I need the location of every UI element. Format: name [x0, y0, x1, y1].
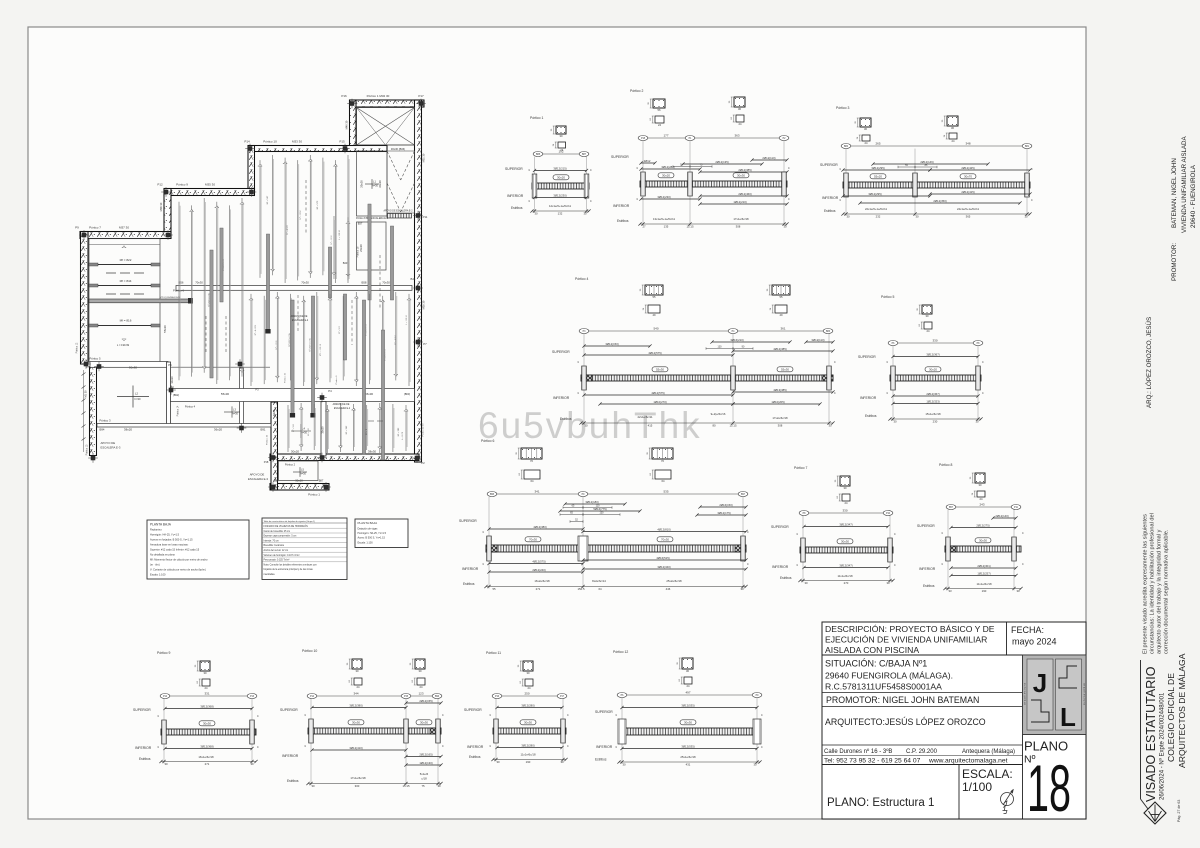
svg-text:30x20: 30x20 [929, 368, 937, 372]
svg-text:2Ø16(150): 2Ø16(150) [719, 503, 732, 507]
svg-text:SUPERIOR: SUPERIOR [133, 708, 151, 712]
svg-text:APOYO DE ESCALERA E-2: APOYO DE ESCALERA E-2 [384, 210, 414, 213]
svg-text:FECHA:: FECHA: [1011, 625, 1044, 635]
svg-text:497: 497 [685, 690, 690, 694]
svg-text:30: 30 [740, 587, 744, 591]
svg-text:232: 232 [876, 215, 881, 219]
svg-text:Pórtico 2: Pórtico 2 [630, 89, 643, 93]
svg-text:Mf: Momento flector de cálculo: Mf: Momento flector de cálculo por metro… [150, 558, 208, 562]
svg-text:macizadas.: macizadas. [264, 574, 276, 576]
svg-text:2Ø12: 2Ø12 [644, 159, 651, 163]
svg-text:70: 70 [661, 459, 664, 463]
svg-text:Mf = 146: Mf = 146 [308, 427, 310, 436]
svg-text:13x1e/6+1e/6c/11: 13x1e/6+1e/6c/11 [653, 217, 676, 221]
svg-text:4Ø12(380): 4Ø12(380) [533, 525, 546, 529]
svg-text:16x2e/6c/18: 16x2e/6c/18 [534, 579, 550, 583]
svg-text:4Ø13(385): 4Ø13(385) [773, 388, 786, 392]
svg-text:3Ø12(180): 3Ø12(180) [585, 500, 598, 504]
svg-text:80: 80 [712, 424, 716, 428]
svg-text:30: 30 [204, 671, 207, 675]
svg-text:150.5: 150.5 [578, 587, 585, 591]
svg-text:35x30: 35x30 [360, 180, 364, 188]
svg-text:Aceros en forjados: B 500 S,: Aceros en forjados: B 500 S, Ys=1.15 [150, 538, 193, 542]
svg-text:INFERIOR: INFERIOR [462, 567, 479, 571]
svg-text:M1 30: M1 30 [84, 390, 88, 398]
svg-text:ARRANQUE DE: ARRANQUE DE [333, 403, 350, 406]
svg-text:308: 308 [736, 225, 741, 229]
svg-text:SITUACIÓN: C/BAJA Nº1: SITUACIÓN: C/BAJA Nº1 [825, 659, 927, 669]
svg-text:V: Cortante de cálculo por met: V: Cortante de cálculo por metro de anch… [150, 568, 206, 572]
svg-text:24: 24 [927, 329, 930, 333]
svg-text:SUPERIOR: SUPERIOR [820, 163, 838, 167]
svg-text:Pórtico 7: Pórtico 7 [89, 226, 101, 230]
svg-text:55x20: 55x20 [874, 175, 882, 179]
svg-text:Pórtico 9: Pórtico 9 [157, 651, 170, 655]
svg-text:38x30: 38x30 [368, 450, 377, 454]
svg-text:SUPERIOR: SUPERIOR [771, 525, 789, 529]
svg-text:56: 56 [658, 108, 661, 112]
svg-text:Nº12Ø15c/15A: Nº12Ø15c/15A [309, 338, 312, 352]
svg-text:70x30: 70x30 [661, 538, 669, 542]
svg-text:B57: B57 [949, 507, 954, 509]
svg-text:2Ø12(275): 2Ø12(275) [976, 523, 989, 527]
svg-text:J: J [1033, 668, 1047, 698]
svg-text:55x30: 55x30 [781, 368, 789, 372]
svg-text:30: 30 [1024, 215, 1028, 219]
svg-text:11x1e/6c/18: 11x1e/6c/18 [976, 582, 991, 586]
svg-text:3Ø12(230): 3Ø12(230) [553, 193, 566, 197]
svg-text:ARQUITECTOS DE MÁLAGA: ARQUITECTOS DE MÁLAGA [1177, 653, 1187, 768]
svg-text:L = 128.18: L = 128.18 [406, 314, 408, 324]
svg-text:11x1e/6c/18: 11x1e/6c/18 [520, 753, 535, 757]
svg-text:P17: P17 [560, 696, 565, 698]
svg-text:55x30: 55x30 [163, 325, 167, 333]
svg-text:Pórtico 3: Pórtico 3 [836, 106, 849, 110]
svg-text:Mf = 816: Mf = 816 [120, 319, 132, 323]
svg-text:Nº = 584: Nº = 584 [292, 423, 295, 432]
svg-text:3Ø12(535): 3Ø12(535) [681, 744, 694, 748]
svg-text:17x2e/6c/18: 17x2e/6c/18 [772, 416, 788, 420]
svg-text:INFERIOR: INFERIOR [282, 754, 299, 758]
svg-text:29640 - FUENGIROLA: 29640 - FUENGIROLA [1190, 164, 1197, 228]
svg-text:Nota: Consulte los detalles re: Nota: Consulte los detalles referentes a… [264, 563, 318, 566]
svg-text:M33 30: M33 30 [292, 140, 302, 144]
svg-text:Pórtico 12: Pórtico 12 [76, 342, 79, 353]
svg-text:230: 230 [933, 420, 938, 424]
svg-text:Intereje: 70 cm: Intereje: 70 cm [264, 539, 279, 542]
svg-text:Acero: B 500 S, Ys=1.15: Acero: B 500 S, Ys=1.15 [358, 537, 386, 540]
svg-text:circunstancias: La identidad y: circunstancias: La identidad y habilitac… [1150, 513, 1156, 654]
svg-text:3Ø12(230): 3Ø12(230) [657, 195, 670, 199]
svg-text:PLANTA BAJA: PLANTA BAJA [150, 523, 172, 527]
svg-text:55: 55 [492, 587, 496, 591]
svg-text:Superior: #12 cada 15 Inferi: Superior: #12 cada 15 Inferior: #12 cada… [150, 548, 200, 552]
svg-text:Hormigón: HA-25, Yc=1.5: Hormigón: HA-25, Yc=1.5 [358, 532, 387, 535]
svg-text:18: 18 [1027, 751, 1071, 825]
svg-text:1Ø12(257): 1Ø12(257) [977, 571, 990, 575]
svg-text:3Ø12(535): 3Ø12(535) [681, 703, 694, 707]
svg-text:L2: L2 [135, 392, 138, 396]
svg-text:30: 30 [804, 581, 808, 585]
svg-text:30: 30 [250, 762, 254, 766]
svg-text:SUPERIOR: SUPERIOR [459, 519, 477, 523]
svg-text:30: 30 [979, 483, 982, 487]
svg-text:24: 24 [687, 684, 690, 688]
svg-text:75: 75 [421, 784, 425, 788]
svg-text:2Ø12(240): 2Ø12(240) [532, 568, 545, 572]
svg-text:Pórtico 1: Pórtico 1 [308, 493, 320, 497]
svg-text:BATEMAN, NIGEL JOHN: BATEMAN, NIGEL JOHN [1171, 158, 1178, 228]
svg-text:30: 30 [846, 215, 850, 219]
svg-text:El presente visado acredita ex: El presente visado acredita expresamente… [1143, 514, 1149, 654]
svg-text:30x30: 30x30 [684, 721, 692, 725]
svg-text:24x1e/6+1e/6c/11: 24x1e/6+1e/6c/11 [957, 207, 980, 211]
svg-text:8x2e/6c/14: 8x2e/6c/14 [592, 579, 606, 583]
svg-text:2Ø12(350): 2Ø12(350) [933, 199, 946, 203]
svg-text:4Ø12(575): 4Ø12(575) [651, 391, 664, 395]
svg-text:30: 30 [311, 784, 315, 788]
svg-text:30: 30 [686, 669, 689, 673]
svg-text:M40 30: M40 30 [345, 120, 349, 129]
svg-text:Nº = A 1034: Nº = A 1034 [254, 324, 257, 335]
svg-text:535: 535 [663, 489, 668, 493]
svg-text:330: 330 [932, 338, 937, 342]
svg-text:190: 190 [982, 589, 987, 593]
svg-text:B83: B83 [826, 331, 831, 333]
svg-text:L: L [1060, 702, 1076, 732]
svg-text:B41: B41 [411, 277, 416, 281]
svg-text:64: 64 [531, 479, 534, 483]
svg-text:20x30: 20x30 [359, 244, 363, 252]
svg-text:30x30 (B36): 30x30 (B36) [391, 147, 405, 151]
svg-text:a r q u i t e c t u r a: a r q u i t e c t u r a [1083, 683, 1087, 705]
svg-text:P6: P6 [168, 363, 172, 367]
svg-text:ESCALERA E-2: ESCALERA E-2 [334, 407, 351, 410]
svg-text:ARQUITECTO:JESÚS LÓPEZ OROZCO: ARQUITECTO:JESÚS LÓPEZ OROZCO [825, 717, 986, 727]
svg-text:30x70: 30x70 [964, 175, 972, 179]
svg-text:4Ø12(385): 4Ø12(385) [773, 347, 786, 351]
svg-text:Estribos: Estribos [923, 584, 935, 588]
svg-text:271: 271 [205, 762, 210, 766]
svg-text:Calle Durones nº 16 - 3ºB: Calle Durones nº 16 - 3ºB [824, 748, 892, 755]
svg-text:P12: P12 [157, 183, 163, 187]
svg-text:300: 300 [355, 784, 360, 788]
svg-text:344: 344 [353, 691, 358, 695]
svg-text:APOYO DE: APOYO DE [250, 473, 265, 477]
svg-text:M36 30: M36 30 [159, 202, 163, 211]
svg-text:55x30: 55x30 [221, 392, 230, 396]
svg-text:Nº = A 923: Nº = A 923 [286, 224, 289, 234]
svg-text:(B63): (B63) [404, 392, 410, 396]
svg-text:30: 30 [534, 212, 538, 216]
svg-text:APOYO DE: APOYO DE [101, 441, 116, 445]
svg-text:30: 30 [738, 107, 741, 111]
svg-text:3Ø16(210): 3Ø16(210) [730, 338, 743, 342]
svg-text:Pórtico 28: Pórtico 28 [357, 246, 360, 257]
svg-text:INFERIOR: INFERIOR [860, 396, 877, 400]
svg-text:ARRANQUE DE: ARRANQUE DE [291, 315, 308, 318]
svg-text:15.15: 15.15 [730, 424, 737, 428]
svg-text:P10: P10 [886, 513, 891, 515]
svg-text:446: 446 [666, 587, 671, 591]
svg-text:3Ø12(280): 3Ø12(280) [521, 703, 534, 707]
svg-text:30: 30 [622, 763, 626, 767]
svg-text:B58: B58 [362, 281, 367, 285]
svg-text:Nº = 503: Nº = 503 [338, 325, 341, 334]
svg-text:11x1e/6c/18: 11x1e/6c/18 [837, 574, 852, 578]
svg-text:1Ø10(270): 1Ø10(270) [653, 400, 666, 404]
svg-text:24: 24 [658, 123, 661, 127]
svg-text:3Ø12(280): 3Ø12(280) [661, 165, 674, 169]
svg-text:Nº L = 128.18: Nº L = 128.18 [319, 343, 322, 356]
svg-text:30: 30 [1016, 589, 1020, 593]
svg-text:SUPERIOR: SUPERIOR [858, 355, 876, 359]
svg-text:341: 341 [534, 489, 539, 493]
svg-text:70: 70 [530, 459, 533, 463]
svg-text:No detallada en plano: No detallada en plano [150, 553, 175, 557]
svg-text:3Ø12(175): 3Ø12(175) [717, 511, 730, 515]
svg-text:Pórtico 13: Pórtico 13 [86, 444, 89, 455]
svg-text:Pórtico 9: Pórtico 9 [335, 375, 338, 384]
svg-text:130: 130 [718, 346, 723, 349]
svg-text:25x1e/6c/18: 25x1e/6c/18 [680, 755, 696, 759]
svg-text:24: 24 [739, 122, 742, 126]
svg-text:SUPERIOR: SUPERIOR [917, 524, 935, 528]
svg-text:PLANTA BAJA: PLANTA BAJA [358, 521, 378, 525]
svg-text:Hormigón: HA-25, Yc=1.5: Hormigón: HA-25, Yc=1.5 [150, 533, 180, 537]
svg-text:Datación de vigas: Datación de vigas [358, 528, 379, 531]
svg-text:15x1e/6c/18: 15x1e/6c/18 [925, 412, 941, 416]
svg-text:Pórtico 10: Pórtico 10 [263, 140, 277, 144]
svg-text:Antequera (Málaga): Antequera (Málaga) [962, 749, 1015, 755]
svg-text:INFERIOR: INFERIOR [772, 565, 789, 569]
svg-text:135: 135 [664, 225, 669, 229]
svg-text:132: 132 [558, 212, 563, 216]
svg-text:Pórtico 3: Pórtico 3 [100, 419, 111, 423]
svg-text:30x20: 30x20 [273, 409, 276, 416]
svg-text:B96: B96 [435, 696, 440, 698]
svg-text:30x30: 30x30 [170, 376, 174, 384]
svg-text:SUPERIOR: SUPERIOR [464, 708, 482, 712]
svg-text:415: 415 [648, 424, 653, 428]
svg-text:1Ø10(205): 1Ø10(205) [771, 400, 784, 404]
svg-text:P14: P14 [244, 140, 250, 144]
svg-text:Nº12Ø15c/15: Nº12Ø15c/15 [222, 258, 225, 271]
svg-text:P14: P14 [310, 696, 315, 698]
svg-text:4Ø12(575): 4Ø12(575) [532, 559, 545, 563]
svg-text:55x30: 55x30 [656, 368, 664, 372]
svg-text:h=30: h=30 [372, 184, 378, 188]
svg-text:330: 330 [842, 508, 847, 512]
svg-text:1Ø12(130): 1Ø12(130) [419, 761, 432, 765]
svg-text:2Ø12(110): 2Ø12(110) [762, 156, 775, 160]
svg-text:Pórtico 11: Pórtico 11 [486, 651, 501, 655]
svg-text:24: 24 [528, 686, 531, 690]
svg-text:B94: B94 [100, 428, 105, 432]
svg-text:2Ø12(301): 2Ø12(301) [977, 564, 990, 568]
svg-text:PROMOTOR:: PROMOTOR: [1171, 243, 1178, 281]
svg-text:3Ø12(280): 3Ø12(280) [521, 743, 534, 747]
svg-text:1/100: 1/100 [962, 780, 992, 794]
svg-text:30x30: 30x30 [352, 721, 360, 725]
svg-text:P15: P15 [339, 140, 345, 144]
svg-text:Escala: 1:100: Escala: 1:100 [150, 573, 166, 577]
svg-text:Pórtico 9: Pórtico 9 [176, 183, 188, 187]
svg-text:30x30: 30x30 [420, 721, 428, 725]
svg-text:c/18: c/18 [421, 777, 427, 781]
svg-text:INFERIOR: INFERIOR [135, 746, 152, 750]
svg-text:B88: B88 [536, 154, 541, 156]
svg-text:www.arquitectomalaga.net: www.arquitectomalaga.net [928, 758, 1008, 765]
svg-text:2Ø12(460): 2Ø12(460) [738, 192, 751, 196]
svg-text:2Ø12(155): 2Ø12(155) [419, 699, 432, 703]
svg-text:9+2(e/6c/16: 9+2(e/6c/16 [711, 412, 726, 416]
svg-text:INFERIOR: INFERIOR [553, 396, 570, 400]
svg-text:38x20: 38x20 [124, 428, 133, 432]
svg-text:3Ø12(150): 3Ø12(150) [605, 342, 618, 346]
svg-text:64: 64 [598, 587, 602, 591]
svg-text:3Ø12(380): 3Ø12(380) [349, 703, 362, 707]
svg-text:24: 24 [952, 139, 955, 143]
svg-text:Escala: 1:100: Escala: 1:100 [358, 541, 374, 544]
svg-text:Estribos: Estribos [463, 582, 475, 586]
svg-text:30x30: 30x30 [841, 540, 849, 544]
svg-text:Estribos: Estribos [824, 209, 836, 213]
svg-text:Mf = 342: Mf = 342 [346, 425, 348, 434]
svg-text:B95: B95 [490, 494, 495, 496]
svg-text:Replanteo: Replanteo [150, 528, 162, 532]
svg-text:Pórtico 6: Pórtico 6 [481, 439, 494, 443]
svg-text:B97: B97 [741, 494, 746, 496]
svg-text:3Ø12(368): 3Ø12(368) [200, 704, 213, 708]
svg-text:30x20: 30x20 [557, 176, 565, 180]
svg-text:Nº = 1294: Nº = 1294 [299, 210, 302, 220]
svg-text:SUPERIOR: SUPERIOR [595, 710, 613, 714]
svg-text:Nº = A 804: Nº = A 804 [394, 334, 397, 344]
svg-text:22x1e/6+1e/6c/11: 22x1e/6+1e/6c/11 [865, 207, 888, 211]
svg-text:30x30: 30x30 [129, 366, 138, 370]
svg-text:331: 331 [204, 691, 209, 695]
svg-text:4Ø12(810): 4Ø12(810) [657, 527, 670, 531]
svg-text:Pórtico 1: Pórtico 1 [530, 116, 543, 120]
svg-text:16x1e/6c/18: 16x1e/6c/18 [198, 755, 214, 759]
svg-text:177: 177 [663, 133, 668, 137]
svg-text:24: 24 [845, 501, 848, 505]
svg-text:30x30: 30x30 [203, 722, 211, 726]
svg-text:2Ø12(425): 2Ø12(425) [961, 166, 974, 170]
svg-text:P18: P18 [641, 138, 646, 140]
svg-text:P16: P16 [341, 94, 347, 98]
svg-text:30: 30 [951, 126, 954, 130]
svg-text:2Ø12(165): 2Ø12(165) [419, 752, 432, 756]
svg-text:INFERIOR: INFERIOR [822, 196, 839, 200]
svg-text:25x2e/6c/18: 25x2e/6c/18 [666, 579, 682, 583]
svg-text:29640 FUENGIROLA (MÁLAGA).: 29640 FUENGIROLA (MÁLAGA). [825, 671, 953, 681]
svg-text:30: 30 [560, 760, 564, 764]
svg-text:2Ø12(146): 2Ø12(146) [920, 160, 933, 164]
svg-text:M31 30: M31 30 [422, 153, 426, 162]
svg-text:SUPERIOR: SUPERIOR [505, 167, 523, 171]
svg-text:Estribos: Estribos [560, 417, 572, 421]
svg-text:B91: B91 [261, 428, 266, 432]
svg-text:Mf < 8: Mf < 8 [365, 428, 368, 435]
svg-text:P16: P16 [495, 696, 500, 698]
svg-text:ESCALERA E-3: ESCALERA E-3 [248, 477, 268, 481]
svg-text:h=30: h=30 [300, 472, 306, 476]
svg-text:270: 270 [844, 581, 849, 585]
svg-text:corrección documental según no: corrección documental según normativa ap… [1164, 529, 1170, 654]
svg-text:70x30: 70x30 [301, 281, 309, 285]
svg-text:30: 30 [886, 581, 890, 585]
svg-text:Estribos: Estribos [511, 206, 523, 210]
svg-text:Nº12Ø15c/15A: Nº12Ø15c/15A [288, 333, 291, 347]
svg-text:Estribos: Estribos [780, 576, 792, 580]
svg-text:4Ø12(575): 4Ø12(575) [648, 351, 661, 355]
svg-text:AISLADA CON PISCINA: AISLADA CON PISCINA [825, 645, 919, 655]
svg-text:h=30: h=30 [232, 412, 238, 416]
svg-text:4Ø16(515): 4Ø16(515) [656, 556, 669, 560]
svg-text:FORJADO DE VIGUETAS DE HOR: FORJADO DE VIGUETAS DE HORMIGÓN [264, 525, 309, 528]
svg-text:3Ø12(410): 3Ø12(410) [349, 746, 362, 750]
svg-text:3Ø12(368): 3Ø12(368) [200, 744, 213, 748]
svg-text:3Ø12(340): 3Ø12(340) [657, 565, 670, 569]
svg-text:Canto de bovedilla: 25 cm: Canto de bovedilla: 25 cm [264, 530, 291, 533]
svg-text:VIVIENDA UNIFAMILIAR AISLADA: VIVIENDA UNIFAMILIAR AISLADA [1181, 136, 1188, 233]
svg-text:Nº = 1036: Nº = 1036 [275, 340, 278, 350]
svg-text:M37 30: M37 30 [119, 226, 129, 230]
svg-text:P7: P7 [423, 342, 427, 346]
svg-text:P15: P15 [404, 696, 409, 698]
svg-text:540: 540 [653, 326, 658, 330]
svg-text:Pág. 27 de 63: Pág. 27 de 63 [1177, 800, 1181, 822]
svg-text:55x30: 55x30 [365, 392, 374, 396]
svg-text:190: 190 [526, 760, 531, 764]
svg-text:30: 30 [583, 212, 587, 216]
svg-text:24: 24 [420, 685, 423, 689]
svg-text:361: 361 [780, 326, 785, 330]
svg-text:130: 130 [600, 512, 605, 515]
svg-text:Pórtico 4: Pórtico 4 [575, 277, 588, 281]
svg-text:30x20: 30x20 [291, 450, 300, 454]
svg-text:3Ø12(367): 3Ø12(367) [926, 352, 939, 356]
svg-text:Pórtico 7: Pórtico 7 [794, 466, 807, 470]
svg-text:a r q u i t e c t u r a: a r q u i t e c t u r a [1023, 683, 1027, 705]
svg-text:Espesor capa compresión: 5 cm: Espesor capa compresión: 5 cm [264, 535, 297, 538]
svg-text:36x20: 36x20 [214, 428, 223, 432]
svg-text:55: 55 [653, 295, 656, 299]
svg-text:1Ø12(323): 1Ø12(323) [926, 399, 939, 403]
svg-text:30x30: 30x30 [737, 174, 745, 178]
svg-text:308: 308 [778, 424, 783, 428]
svg-text:431: 431 [686, 763, 691, 767]
svg-text:5x1e/6: 5x1e/6 [420, 772, 429, 776]
svg-text:2Ø12(415): 2Ø12(415) [961, 190, 974, 194]
svg-text:70x30: 70x30 [529, 538, 537, 542]
svg-text:P11: P11 [423, 215, 428, 219]
svg-text:Armadura base en losas macizas: Armadura base en losas macizas: [150, 543, 189, 547]
svg-text:243: 243 [979, 502, 984, 506]
svg-text:30: 30 [844, 486, 847, 490]
svg-text:17x1e/6c/18: 17x1e/6c/18 [350, 776, 366, 780]
svg-text:Estribos: Estribos [617, 219, 629, 223]
svg-text:COLEGIO OFICIAL DE: COLEGIO OFICIAL DE [1166, 673, 1176, 762]
svg-text:B87: B87 [319, 479, 324, 483]
svg-text:5Ø16(775): 5Ø16(775) [593, 507, 606, 511]
svg-text:M30 30: M30 30 [422, 300, 426, 309]
svg-text:30x20: 30x20 [662, 174, 670, 178]
svg-text:INFERIOR: INFERIOR [596, 745, 613, 749]
svg-text:Estribos: Estribos [287, 779, 299, 783]
